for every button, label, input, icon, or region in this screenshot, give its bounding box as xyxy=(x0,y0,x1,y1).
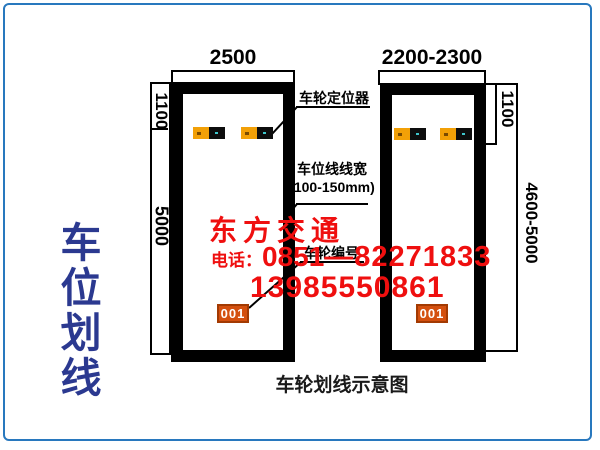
label-underline xyxy=(296,106,370,108)
dimension-right-offset: 1100 xyxy=(497,91,517,128)
wheel-positioner-icon xyxy=(193,127,225,139)
watermark-phone: 电话： 0851 —82271833 xyxy=(211,241,491,274)
positioner-black-block xyxy=(456,128,472,140)
dimension-bracket-left-width xyxy=(171,70,295,84)
wheel-positioner-icon xyxy=(241,127,273,139)
watermark-mobile-number: 13985550861 xyxy=(250,271,445,305)
positioner-orange-block xyxy=(394,128,410,140)
positioner-orange-block xyxy=(193,127,209,139)
label-line-width-range: (100-150mm) xyxy=(288,179,376,195)
watermark-phone-label: 电话： xyxy=(211,246,262,271)
positioner-black-block xyxy=(410,128,426,140)
space-number-badge: 001 xyxy=(217,304,249,323)
dimension-left-offset: 1100 xyxy=(151,93,171,130)
dimension-right-length: 4600-5000 xyxy=(521,182,541,263)
side-title: 车位划线 xyxy=(56,221,97,401)
positioner-black-block xyxy=(209,127,225,139)
diagram-canvas: 车位划线 2500 2200-2300 1100 5000 1100 4600-… xyxy=(0,0,600,450)
label-line-width: 车位线线宽 xyxy=(288,159,376,179)
dimension-right-width: 2200-2300 xyxy=(368,46,496,70)
dimension-left-width: 2500 xyxy=(171,46,295,70)
watermark-phone-number: —82271833 xyxy=(324,241,491,274)
label-underline xyxy=(296,203,368,205)
watermark-phone-area-code: 0851 xyxy=(262,241,324,273)
space-number-badge: 001 xyxy=(416,304,448,323)
wheel-positioner-icon xyxy=(394,128,426,140)
dimension-bracket-right-offset xyxy=(484,83,497,145)
positioner-orange-block xyxy=(440,128,456,140)
diagram-caption: 车轮划线示意图 xyxy=(262,370,422,397)
positioner-black-block xyxy=(257,127,273,139)
wheel-positioner-icon xyxy=(440,128,472,140)
dimension-left-length: 5000 xyxy=(151,206,172,246)
label-wheel-positioner: 车轮定位器 xyxy=(299,88,369,108)
dimension-bracket-right-width xyxy=(378,70,486,85)
positioner-orange-block xyxy=(241,127,257,139)
